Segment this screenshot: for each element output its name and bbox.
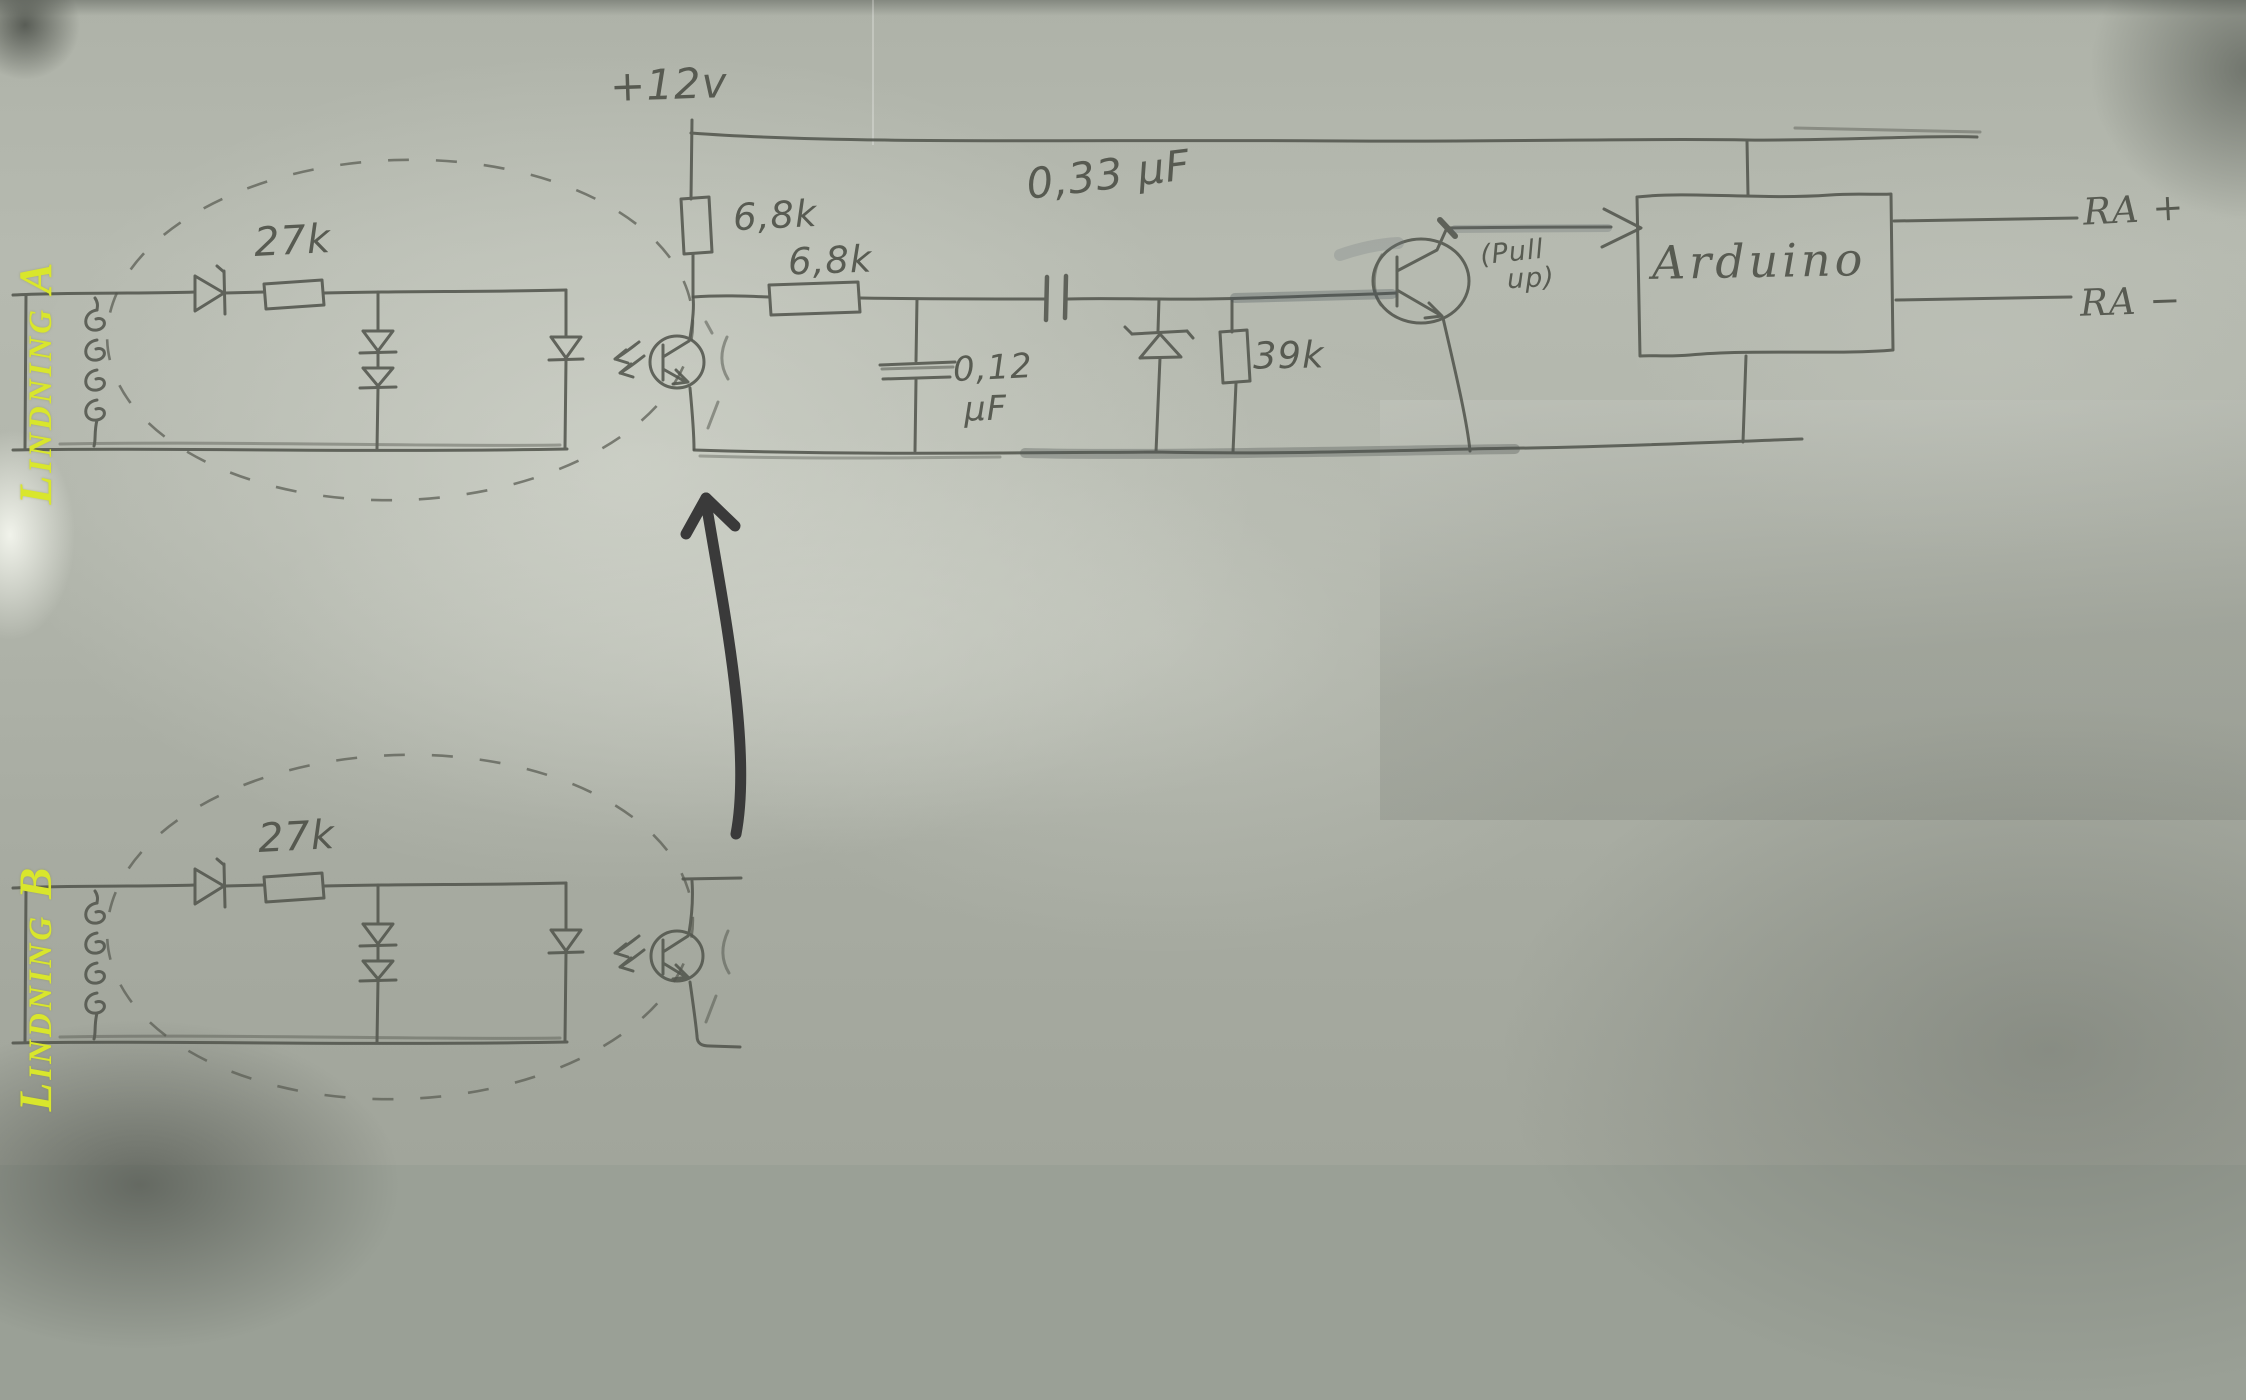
filter-capacitor [880, 299, 955, 451]
output-negative-label: RA − [2079, 278, 2182, 325]
signal-wire [693, 296, 769, 297]
dashed-isolation-loop-b [101, 745, 699, 1109]
arduino-ground-drop [1743, 356, 1746, 442]
ra-minus-wire [1896, 297, 2071, 300]
optocoupler-phototransistor-a [615, 297, 728, 449]
stray-mark [722, 337, 728, 379]
output-positive-label: RA + [2082, 185, 2185, 233]
arduino-label: Arduino [1652, 232, 1867, 290]
ra-plus-wire [1894, 218, 2077, 221]
signal-wire [860, 298, 1046, 299]
light-arrows-b [615, 936, 644, 971]
winding-a-circuit [13, 266, 583, 450]
winding-b-title: Lindning B [9, 865, 63, 1112]
base-resistor-label: 39k [1253, 333, 1325, 377]
stray-mark [706, 322, 712, 333]
stray-mark [706, 996, 716, 1022]
resistor-6k8-horizontal-body [769, 282, 860, 315]
annotation-arrow [686, 498, 741, 834]
optocoupler-phototransistor-b [615, 878, 741, 1047]
transistor [1373, 230, 1470, 451]
light-arrows-a [615, 342, 644, 377]
supply-rail-double [1795, 128, 1980, 132]
photo-of-schematic: { "photo": { "description": "hand-drawn … [0, 0, 2246, 1165]
stray-mark [723, 931, 729, 973]
winding-b-resistor-label: 27k [257, 812, 336, 862]
dashed-isolation-loop-a [101, 150, 699, 510]
filter-capacitor-unit-label: µF [963, 388, 1008, 429]
winding-a-resistor-label: 27k [253, 216, 332, 266]
arduino-supply-drop [1747, 141, 1748, 195]
pullup-note-line2: up) [1506, 262, 1555, 295]
resistor-39k [1220, 300, 1250, 452]
main-circuit [681, 120, 2077, 458]
winding-b-circuit [13, 859, 583, 1043]
pullup-resistor-label: 6,8k [732, 192, 818, 239]
ground-rail-double [700, 456, 1000, 458]
winding-a-title: Lindning A [9, 260, 63, 505]
series-resistor-label: 6,8k [787, 238, 873, 284]
resistor-6k8-vertical-body [681, 197, 712, 254]
supply-rail [691, 133, 1977, 141]
filter-capacitor-value-label: 0,12 [952, 346, 1034, 390]
coupling-capacitor [1046, 276, 1066, 320]
zener-diode [1125, 299, 1193, 452]
collector-top-tick [683, 878, 741, 879]
stray-mark [708, 402, 718, 428]
supply-voltage-label: +12v [609, 58, 728, 111]
